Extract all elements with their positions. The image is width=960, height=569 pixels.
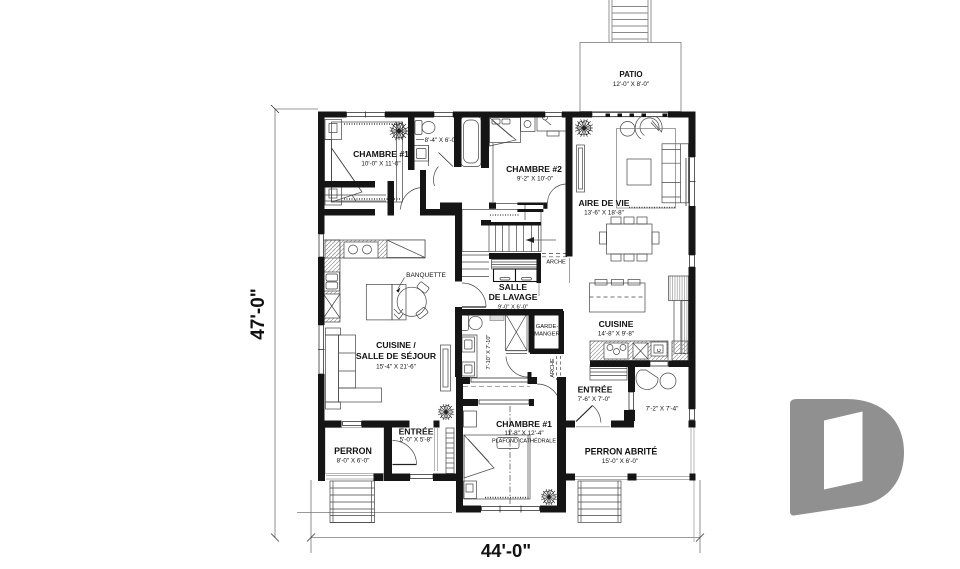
svg-text:ENTRÉE: ENTRÉE (578, 385, 613, 395)
svg-text:14'-8" X 9'-8": 14'-8" X 9'-8" (598, 331, 634, 338)
svg-text:PERRON ABRITÉ: PERRON ABRITÉ (585, 447, 658, 457)
svg-text:CHAMBRE #1: CHAMBRE #1 (496, 419, 552, 429)
svg-text:DE LAVAGE: DE LAVAGE (489, 292, 538, 302)
svg-text:PLAFOND CATHÉDRALE: PLAFOND CATHÉDRALE (492, 438, 556, 445)
svg-text:8'-0" X 6'-0": 8'-0" X 6'-0" (337, 458, 370, 465)
svg-text:CHAMBRE #1: CHAMBRE #1 (353, 149, 409, 159)
svg-text:ARCHE: ARCHE (546, 260, 566, 266)
svg-text:MANGER: MANGER (534, 332, 559, 338)
svg-text:7'-10" X 7'-10": 7'-10" X 7'-10" (486, 335, 492, 370)
svg-text:ARCHE: ARCHE (550, 358, 556, 378)
svg-text:9'-0" X 6'-0": 9'-0" X 6'-0" (498, 305, 528, 311)
svg-text:44'-0": 44'-0" (481, 540, 531, 561)
svg-text:9'-2" X 10'-0": 9'-2" X 10'-0" (517, 176, 553, 183)
svg-text:AIRE DE VIE: AIRE DE VIE (578, 198, 629, 208)
svg-text:PATIO: PATIO (619, 70, 642, 79)
svg-text:CUISINE /: CUISINE / (376, 340, 416, 350)
svg-text:CUISINE: CUISINE (599, 319, 634, 329)
svg-text:7'-2" X 7'-4": 7'-2" X 7'-4" (646, 406, 679, 413)
svg-text:GARDE-: GARDE- (536, 324, 559, 330)
svg-text:CHAMBRE #2: CHAMBRE #2 (506, 164, 562, 174)
svg-text:PERRON: PERRON (334, 446, 372, 456)
svg-text:13'-6" X 18'-8": 13'-6" X 18'-8" (584, 210, 624, 217)
svg-text:15'-4" X 21'-6": 15'-4" X 21'-6" (376, 364, 416, 371)
svg-text:5'-0" X 5'-8": 5'-0" X 5'-8" (400, 437, 433, 444)
svg-text:11'-8" X 12'-4": 11'-8" X 12'-4" (504, 430, 543, 437)
svg-text:ENTRÉE: ENTRÉE (399, 427, 434, 437)
svg-text:12'-0" X 8'-0": 12'-0" X 8'-0" (613, 81, 649, 88)
svg-text:8'-4" X 6'-0": 8'-4" X 6'-0" (425, 137, 458, 144)
svg-text:10'-0" X 11'-0": 10'-0" X 11'-0" (361, 161, 400, 168)
svg-text:7'-6" X 7'-0": 7'-6" X 7'-0" (578, 396, 611, 403)
svg-text:SALLE DE SÉJOUR: SALLE DE SÉJOUR (356, 351, 437, 361)
svg-text:BANQUETTE: BANQUETTE (406, 272, 446, 279)
svg-text:15'-0" X 6'-0": 15'-0" X 6'-0" (602, 458, 638, 465)
svg-text:47'-0": 47'-0" (248, 288, 269, 340)
svg-text:SALLE: SALLE (499, 282, 527, 292)
